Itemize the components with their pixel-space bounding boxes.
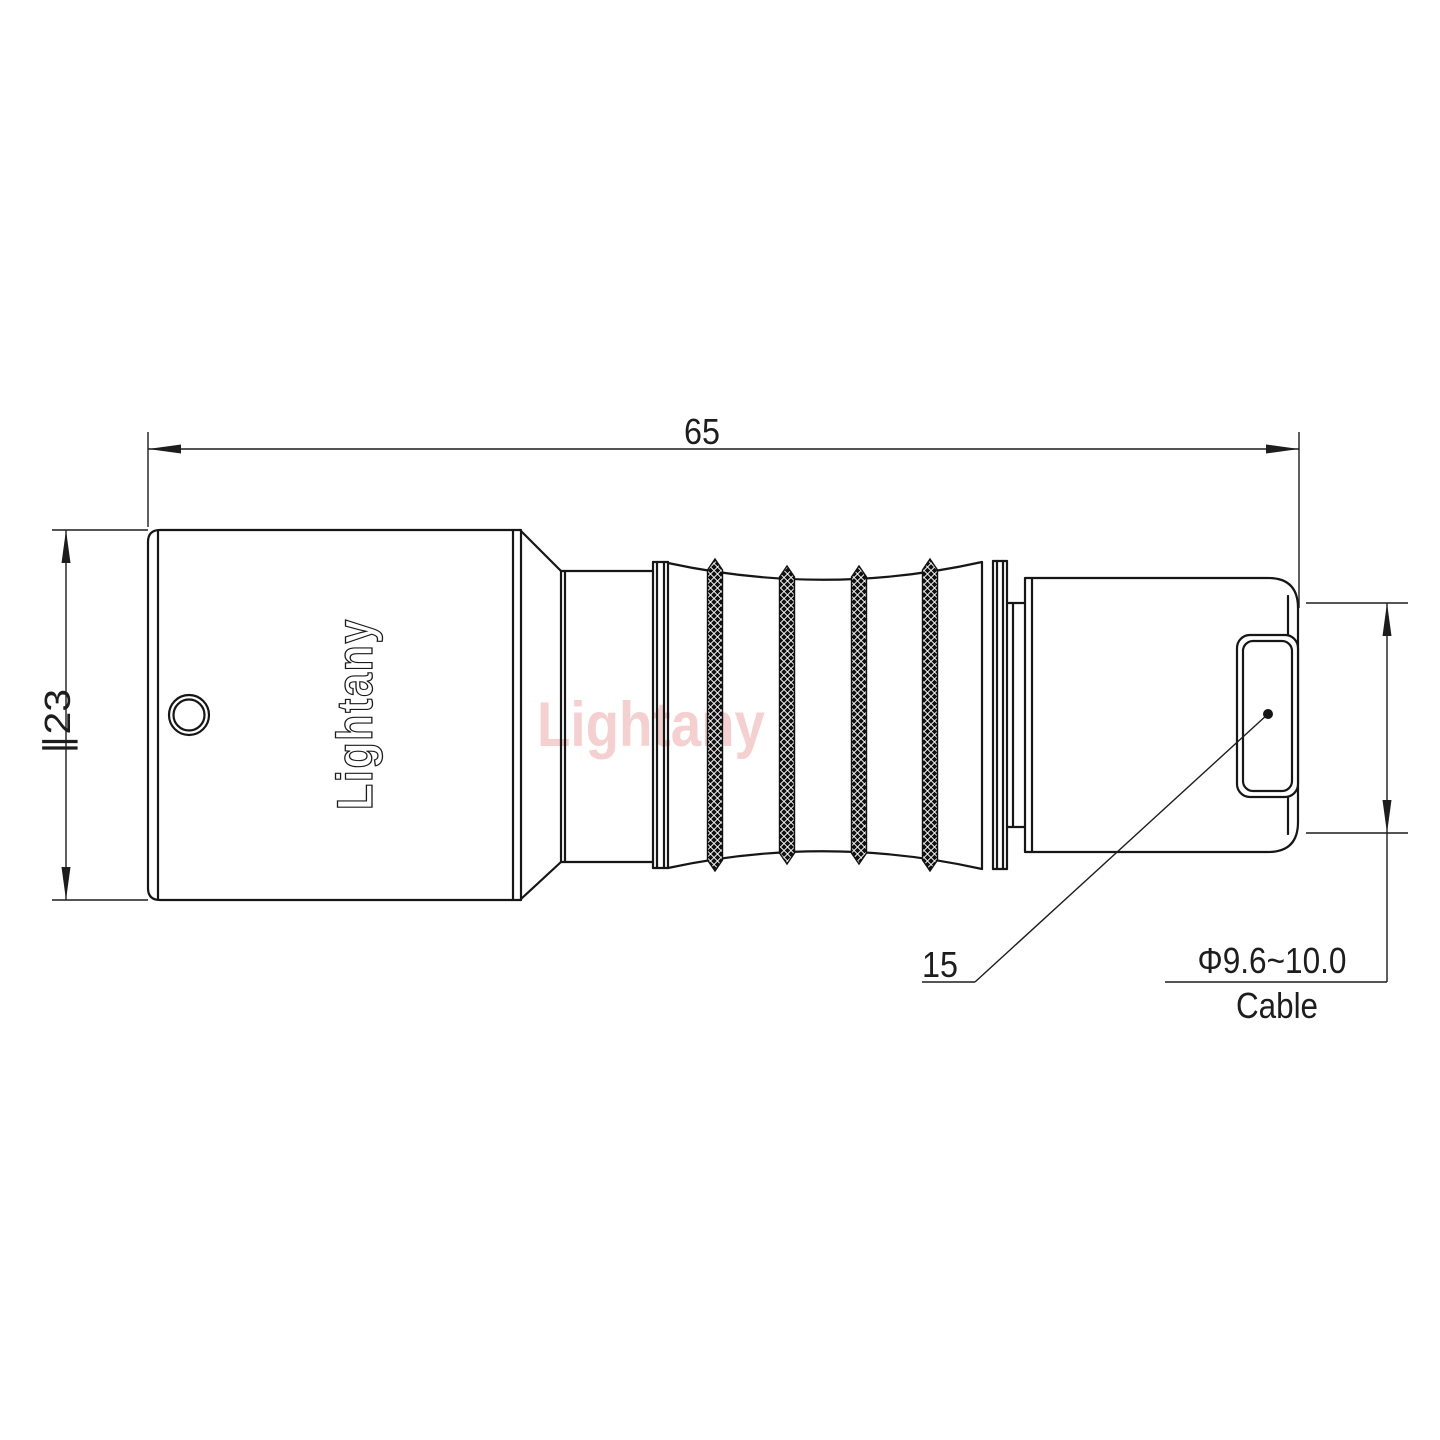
engraved-logo: Lightany [327,618,383,810]
part-callout-label: 15 [922,944,958,985]
knurl-strip-1 [708,559,723,871]
cable-word-label: Cable [1236,985,1318,1026]
technical-drawing-canvas: Lightany Lightany [0,0,1440,1440]
length-dimension-label: 65 [684,411,720,452]
cable-diameter-label: Φ9.6~10.0 [1198,940,1347,981]
technical-drawing-page: Lightany Lightany [0,0,1440,1440]
knurl-strip-4 [923,559,938,871]
front-body: Lightany [148,530,521,900]
diameter-dimension-label: ∥23 [37,689,78,755]
watermark: Lightany [537,690,765,760]
knurl-strip-3 [852,566,867,864]
callout-leader-dot [1263,709,1273,719]
knurl-strip-2 [780,566,795,864]
